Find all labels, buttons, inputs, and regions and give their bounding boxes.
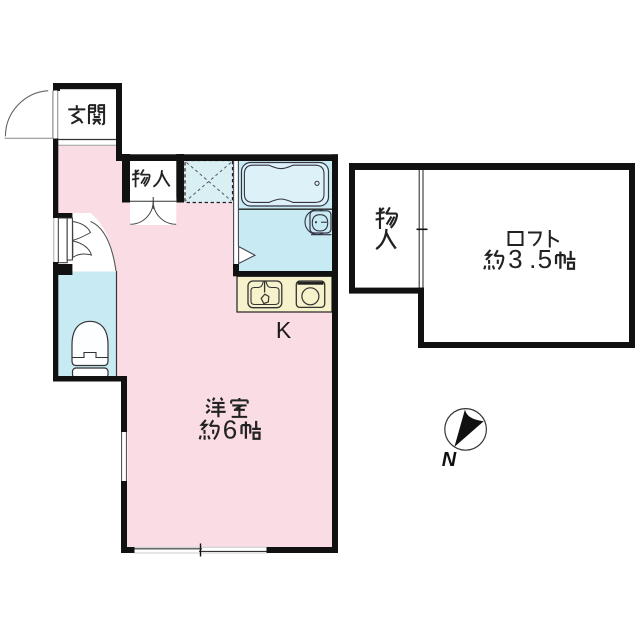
svg-text:6: 6 (223, 414, 237, 444)
svg-text:.: . (529, 244, 536, 274)
svg-text:3: 3 (508, 244, 522, 274)
svg-text:N: N (442, 449, 457, 471)
svg-text:K: K (276, 317, 292, 343)
svg-text:5: 5 (538, 244, 552, 274)
